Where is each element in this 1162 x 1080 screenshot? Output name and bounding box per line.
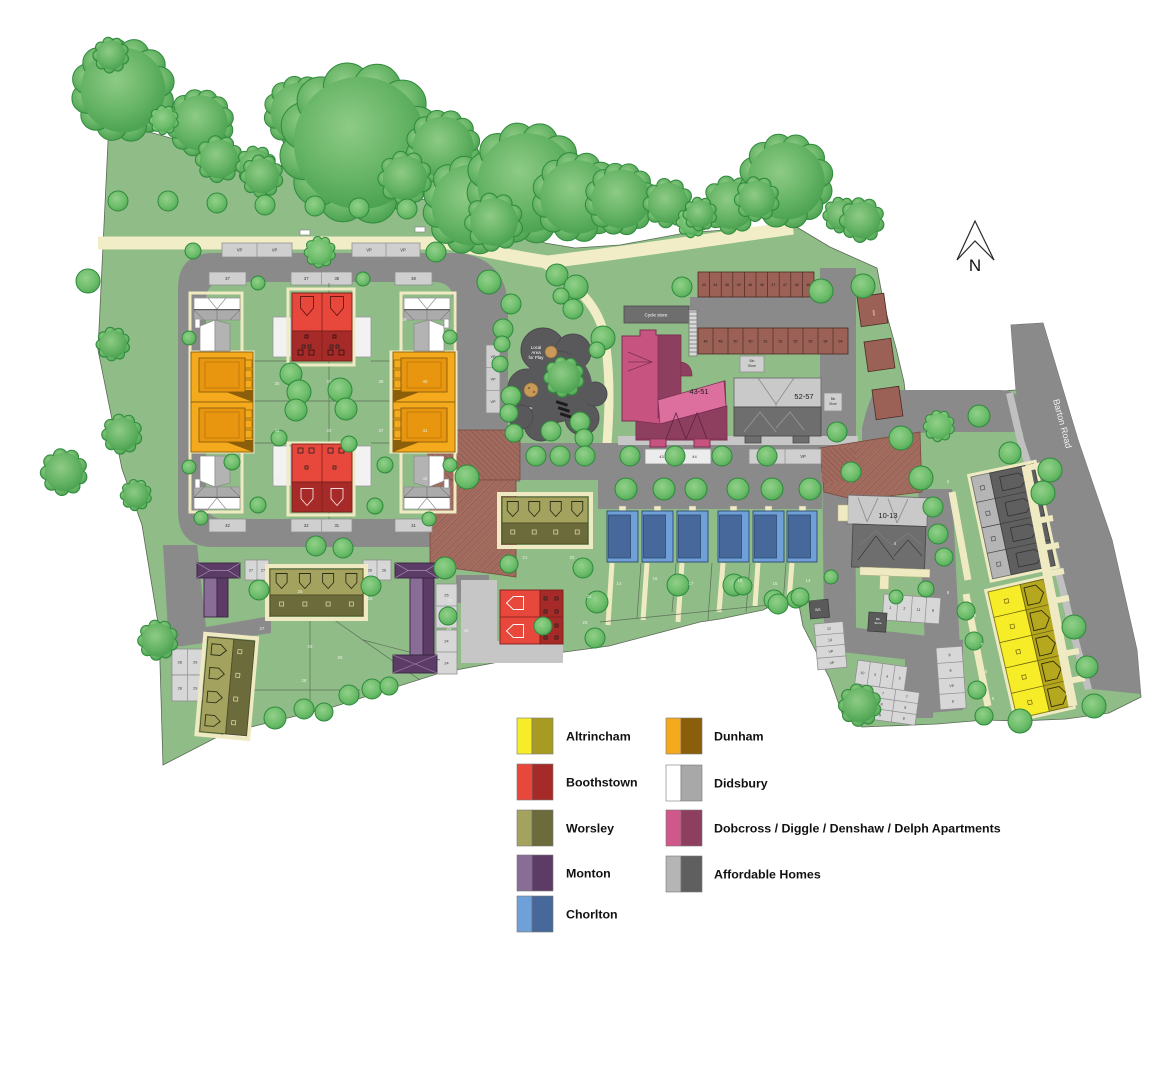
svg-text:32: 32 <box>327 428 332 433</box>
svg-text:47: 47 <box>783 283 787 287</box>
svg-text:B/S: B/S <box>815 608 820 612</box>
svg-text:Worsley: Worsley <box>566 822 614 836</box>
svg-text:6: 6 <box>932 609 934 613</box>
svg-text:44: 44 <box>713 283 717 287</box>
svg-text:54: 54 <box>824 339 828 343</box>
svg-text:40: 40 <box>423 379 428 384</box>
svg-text:44: 44 <box>692 454 697 459</box>
svg-text:46: 46 <box>748 283 752 287</box>
svg-text:27: 27 <box>261 568 265 572</box>
svg-text:42: 42 <box>423 476 428 481</box>
svg-text:14: 14 <box>617 581 622 586</box>
svg-text:35: 35 <box>275 381 280 386</box>
svg-text:8: 8 <box>949 669 951 673</box>
svg-text:27: 27 <box>260 626 265 631</box>
svg-text:37: 37 <box>225 276 230 281</box>
svg-text:34: 34 <box>275 428 280 433</box>
svg-text:51: 51 <box>779 339 783 343</box>
svg-text:Dobcross / Diggle / Denshaw /: Dobcross / Diggle / Denshaw / Delph Apar… <box>714 822 1001 836</box>
svg-text:13: 13 <box>828 638 832 642</box>
svg-text:25: 25 <box>444 593 448 597</box>
svg-text:25: 25 <box>298 589 303 594</box>
svg-text:Dunham: Dunham <box>714 730 764 744</box>
svg-text:43: 43 <box>659 454 664 459</box>
svg-text:Affordable Homes: Affordable Homes <box>714 868 821 882</box>
svg-text:38: 38 <box>411 276 416 281</box>
svg-text:11: 11 <box>916 608 920 612</box>
svg-text:29: 29 <box>193 686 197 690</box>
svg-text:22: 22 <box>448 598 453 603</box>
svg-text:VP: VP <box>400 248 406 253</box>
svg-text:12: 12 <box>827 627 831 631</box>
svg-text:Store: Store <box>874 621 882 625</box>
svg-text:31: 31 <box>411 523 416 528</box>
svg-text:VP: VP <box>490 377 496 381</box>
svg-text:33: 33 <box>570 555 575 560</box>
svg-text:29: 29 <box>193 660 197 664</box>
svg-text:64: 64 <box>839 339 843 343</box>
svg-text:16: 16 <box>653 576 658 581</box>
svg-text:48: 48 <box>719 339 723 343</box>
svg-text:Store: Store <box>829 402 837 406</box>
svg-text:38: 38 <box>334 276 339 281</box>
svg-text:26: 26 <box>338 655 343 660</box>
svg-text:32: 32 <box>304 523 309 528</box>
svg-text:10: 10 <box>860 671 865 676</box>
svg-text:43: 43 <box>702 283 706 287</box>
svg-text:26: 26 <box>382 568 386 572</box>
svg-text:46: 46 <box>760 283 764 287</box>
svg-text:24: 24 <box>444 661 448 665</box>
svg-text:37: 37 <box>327 379 332 384</box>
svg-text:Cycle store: Cycle store <box>645 313 668 318</box>
svg-text:22: 22 <box>587 594 592 599</box>
svg-text:Didsbury: Didsbury <box>714 777 768 791</box>
svg-text:28: 28 <box>178 686 182 690</box>
svg-text:17: 17 <box>689 581 694 586</box>
svg-text:45: 45 <box>725 283 729 287</box>
svg-text:Store: Store <box>748 364 756 368</box>
svg-text:9: 9 <box>952 699 954 703</box>
svg-text:for Play: for Play <box>529 355 545 360</box>
svg-text:26: 26 <box>464 628 469 633</box>
svg-text:Chorlton: Chorlton <box>566 908 618 922</box>
svg-text:VP: VP <box>949 684 955 688</box>
svg-text:28: 28 <box>302 678 307 683</box>
svg-text:51: 51 <box>764 339 768 343</box>
svg-text:15: 15 <box>773 581 778 586</box>
svg-text:32: 32 <box>225 523 230 528</box>
svg-text:26: 26 <box>368 596 373 601</box>
svg-text:52-57: 52-57 <box>794 392 813 401</box>
svg-text:50: 50 <box>749 339 753 343</box>
svg-text:VP: VP <box>800 454 806 459</box>
svg-text:N: N <box>969 256 981 275</box>
svg-text:37: 37 <box>304 276 309 281</box>
svg-text:52: 52 <box>794 339 798 343</box>
svg-text:47: 47 <box>771 283 775 287</box>
svg-text:Altrincham: Altrincham <box>566 730 631 744</box>
svg-text:39: 39 <box>402 317 407 322</box>
svg-text:36: 36 <box>275 317 280 322</box>
svg-text:14: 14 <box>806 578 811 583</box>
svg-text:26: 26 <box>368 568 372 572</box>
svg-text:33: 33 <box>275 476 280 481</box>
svg-text:18: 18 <box>738 578 743 583</box>
svg-text:43-51: 43-51 <box>689 387 708 396</box>
svg-text:VP: VP <box>237 248 243 253</box>
svg-text:10-13: 10-13 <box>878 511 897 520</box>
svg-text:53: 53 <box>809 339 813 343</box>
svg-text:27: 27 <box>249 568 253 572</box>
svg-text:24: 24 <box>444 639 448 643</box>
svg-text:Bin: Bin <box>831 397 836 401</box>
svg-text:Bin: Bin <box>750 359 755 363</box>
svg-text:21: 21 <box>523 555 528 560</box>
svg-text:6: 6 <box>948 653 950 657</box>
svg-text:28: 28 <box>178 660 182 664</box>
svg-text:37: 37 <box>379 428 384 433</box>
svg-text:VP: VP <box>490 400 496 404</box>
svg-text:50: 50 <box>734 339 738 343</box>
svg-text:2: 2 <box>903 607 905 611</box>
svg-text:VP: VP <box>366 248 372 253</box>
svg-text:23: 23 <box>447 626 452 631</box>
svg-text:Boothstown: Boothstown <box>566 776 638 790</box>
svg-text:31: 31 <box>334 523 339 528</box>
svg-text:Monton: Monton <box>566 867 611 881</box>
svg-text:29: 29 <box>308 644 313 649</box>
svg-text:41: 41 <box>423 428 428 433</box>
svg-text:VP: VP <box>272 248 278 253</box>
svg-text:1: 1 <box>889 606 891 610</box>
svg-text:45: 45 <box>737 283 741 287</box>
svg-text:48: 48 <box>795 283 799 287</box>
svg-text:23: 23 <box>583 620 588 625</box>
svg-text:39: 39 <box>379 379 384 384</box>
svg-text:49: 49 <box>704 339 708 343</box>
